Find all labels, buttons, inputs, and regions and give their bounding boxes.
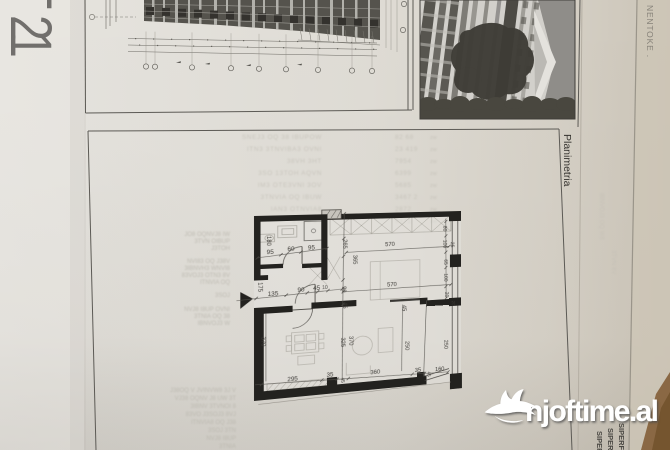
svg-text:45: 45 bbox=[313, 284, 320, 291]
svg-text:80: 80 bbox=[442, 226, 447, 232]
svg-text:65: 65 bbox=[443, 259, 448, 265]
svg-text:180: 180 bbox=[265, 236, 273, 246]
svg-text:NENTOKE .: NENTOKE . bbox=[645, 5, 655, 58]
svg-text:95: 95 bbox=[308, 244, 315, 251]
svg-text:295: 295 bbox=[287, 375, 298, 383]
svg-text:35: 35 bbox=[415, 366, 421, 373]
svg-text:570: 570 bbox=[385, 241, 395, 248]
svg-text:45: 45 bbox=[340, 377, 346, 383]
svg-text:60: 60 bbox=[287, 245, 294, 252]
svg-text:25: 25 bbox=[449, 242, 454, 248]
svg-text:570: 570 bbox=[387, 281, 397, 288]
svg-text:325: 325 bbox=[340, 337, 347, 347]
svg-text:45: 45 bbox=[342, 302, 349, 309]
svg-text:265: 265 bbox=[342, 239, 349, 249]
svg-text:45: 45 bbox=[426, 371, 431, 377]
svg-text:370: 370 bbox=[348, 336, 355, 346]
svg-text:250: 250 bbox=[404, 341, 411, 351]
svg-text:njoftime.al: njoftime.al bbox=[525, 395, 658, 428]
svg-text:250: 250 bbox=[443, 340, 450, 350]
svg-text:360: 360 bbox=[370, 368, 380, 376]
svg-text:45: 45 bbox=[401, 305, 408, 312]
svg-text:90: 90 bbox=[297, 286, 304, 293]
svg-text:35: 35 bbox=[327, 371, 334, 379]
svg-text:90: 90 bbox=[341, 286, 348, 293]
svg-text:135: 135 bbox=[268, 290, 279, 298]
svg-text:175: 175 bbox=[257, 282, 265, 292]
svg-text:10: 10 bbox=[322, 285, 328, 291]
svg-text:370: 370 bbox=[260, 336, 268, 346]
svg-text:20: 20 bbox=[450, 301, 455, 307]
svg-text:20: 20 bbox=[444, 292, 449, 298]
svg-text:100: 100 bbox=[442, 240, 447, 249]
svg-text:95: 95 bbox=[267, 248, 274, 255]
svg-text:100: 100 bbox=[443, 273, 448, 282]
svg-text:160: 160 bbox=[435, 365, 444, 373]
svg-text:365: 365 bbox=[352, 255, 359, 265]
